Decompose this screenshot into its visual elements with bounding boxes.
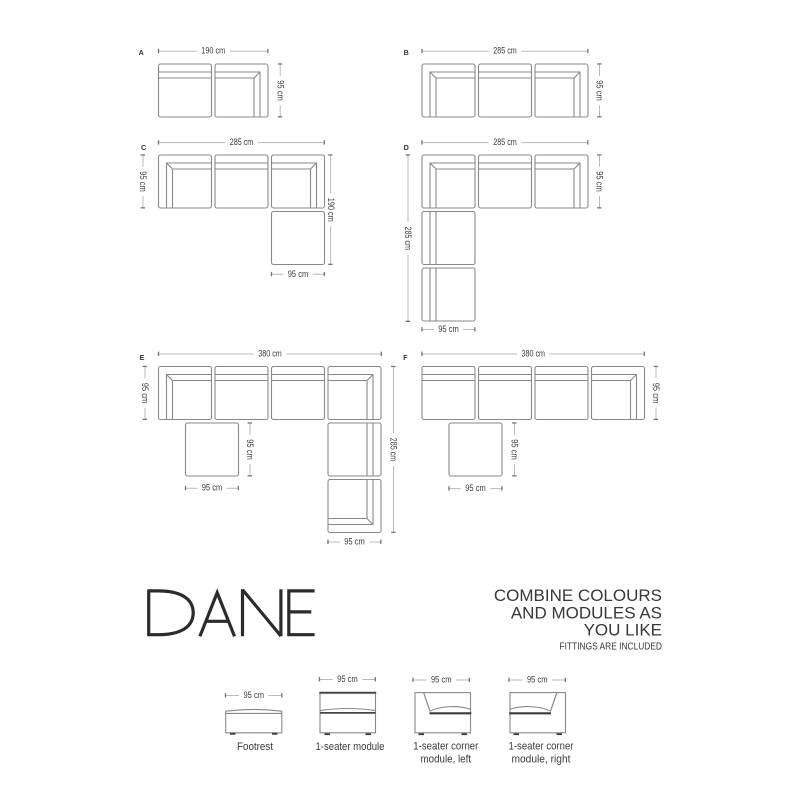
svg-text:D: D	[404, 143, 409, 152]
svg-text:F: F	[403, 353, 408, 362]
svg-text:YOU LIKE: YOU LIKE	[584, 621, 662, 640]
svg-text:1-seater corner: 1-seater corner	[509, 741, 574, 753]
svg-text:95 cm: 95 cm	[288, 269, 309, 279]
svg-text:95 cm: 95 cm	[245, 439, 255, 460]
svg-text:95 cm: 95 cm	[527, 675, 548, 685]
svg-text:FITTINGS ARE INCLUDED: FITTINGS ARE INCLUDED	[560, 640, 663, 652]
svg-text:285 cm: 285 cm	[403, 227, 413, 251]
svg-text:1-seater corner: 1-seater corner	[413, 741, 478, 753]
svg-text:COMBINE COLOURS: COMBINE COLOURS	[494, 586, 662, 605]
svg-text:C: C	[141, 143, 146, 152]
svg-text:95 cm: 95 cm	[275, 80, 285, 101]
svg-text:95 cm: 95 cm	[244, 690, 265, 700]
svg-text:E: E	[140, 353, 145, 362]
svg-text:380 cm: 380 cm	[522, 349, 546, 359]
svg-text:95 cm: 95 cm	[431, 675, 452, 685]
svg-text:95 cm: 95 cm	[202, 483, 223, 493]
svg-text:95 cm: 95 cm	[140, 383, 150, 404]
svg-text:190 cm: 190 cm	[326, 198, 336, 222]
svg-text:module, left: module, left	[421, 754, 472, 766]
svg-text:95 cm: 95 cm	[344, 537, 365, 547]
svg-text:95 cm: 95 cm	[651, 383, 661, 404]
svg-text:285 cm: 285 cm	[493, 137, 517, 147]
svg-text:95 cm: 95 cm	[595, 171, 605, 192]
svg-text:95 cm: 95 cm	[438, 324, 459, 334]
svg-text:285 cm: 285 cm	[493, 46, 517, 56]
svg-text:Footrest: Footrest	[237, 741, 273, 753]
svg-text:95 cm: 95 cm	[510, 439, 520, 460]
svg-text:95 cm: 95 cm	[465, 483, 486, 493]
svg-text:285 cm: 285 cm	[230, 137, 254, 147]
svg-text:190 cm: 190 cm	[201, 46, 225, 56]
svg-text:380 cm: 380 cm	[258, 349, 282, 359]
svg-text:1-seater module: 1-seater module	[316, 741, 385, 753]
svg-text:95 cm: 95 cm	[138, 171, 148, 192]
svg-text:95 cm: 95 cm	[595, 80, 605, 101]
svg-text:AND MODULES AS: AND MODULES AS	[511, 603, 662, 622]
svg-text:285 cm: 285 cm	[389, 438, 399, 462]
svg-text:module, right: module, right	[512, 754, 571, 766]
svg-text:B: B	[404, 48, 409, 57]
svg-text:95 cm: 95 cm	[337, 674, 358, 684]
svg-text:A: A	[139, 48, 144, 57]
